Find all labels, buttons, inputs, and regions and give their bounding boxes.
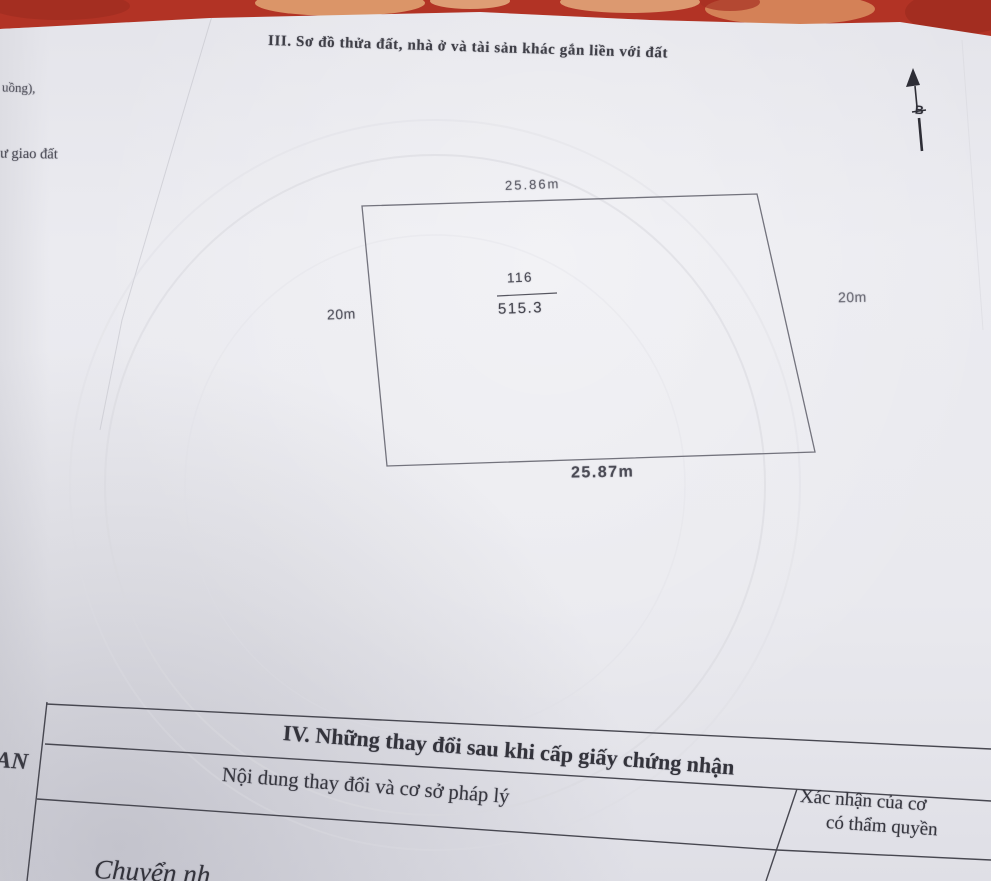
photo-frame: III. Sơ đồ thửa đất, nhà ở và tài sản kh… [0,0,991,881]
parcel-area: 515.3 [498,299,544,318]
table-col1-bottom-border [37,799,777,850]
table-column-divider [766,789,797,881]
north-arrow-label: B [914,103,924,118]
plot-dimension-left: 20m [327,306,356,323]
parcel-number: 116 [507,270,534,286]
plot-dimension-top: 25.86m [505,176,561,193]
plot-dimension-right: 20m [838,289,867,305]
parcel-fraction-bar [497,293,557,296]
margin-fragment-top: uồng), [2,79,36,96]
page-edge [962,40,983,330]
page-crease [100,16,212,430]
plot-dimension-bottom: 25.87m [571,463,635,482]
document-page: III. Sơ đồ thửa đất, nhà ở và tài sản kh… [0,0,991,881]
margin-fragment-an: AN [0,747,29,775]
table-left-border [27,702,47,881]
table-col2-bottom-border [777,850,991,860]
margin-fragment-middle: ư giao đất [0,145,58,163]
